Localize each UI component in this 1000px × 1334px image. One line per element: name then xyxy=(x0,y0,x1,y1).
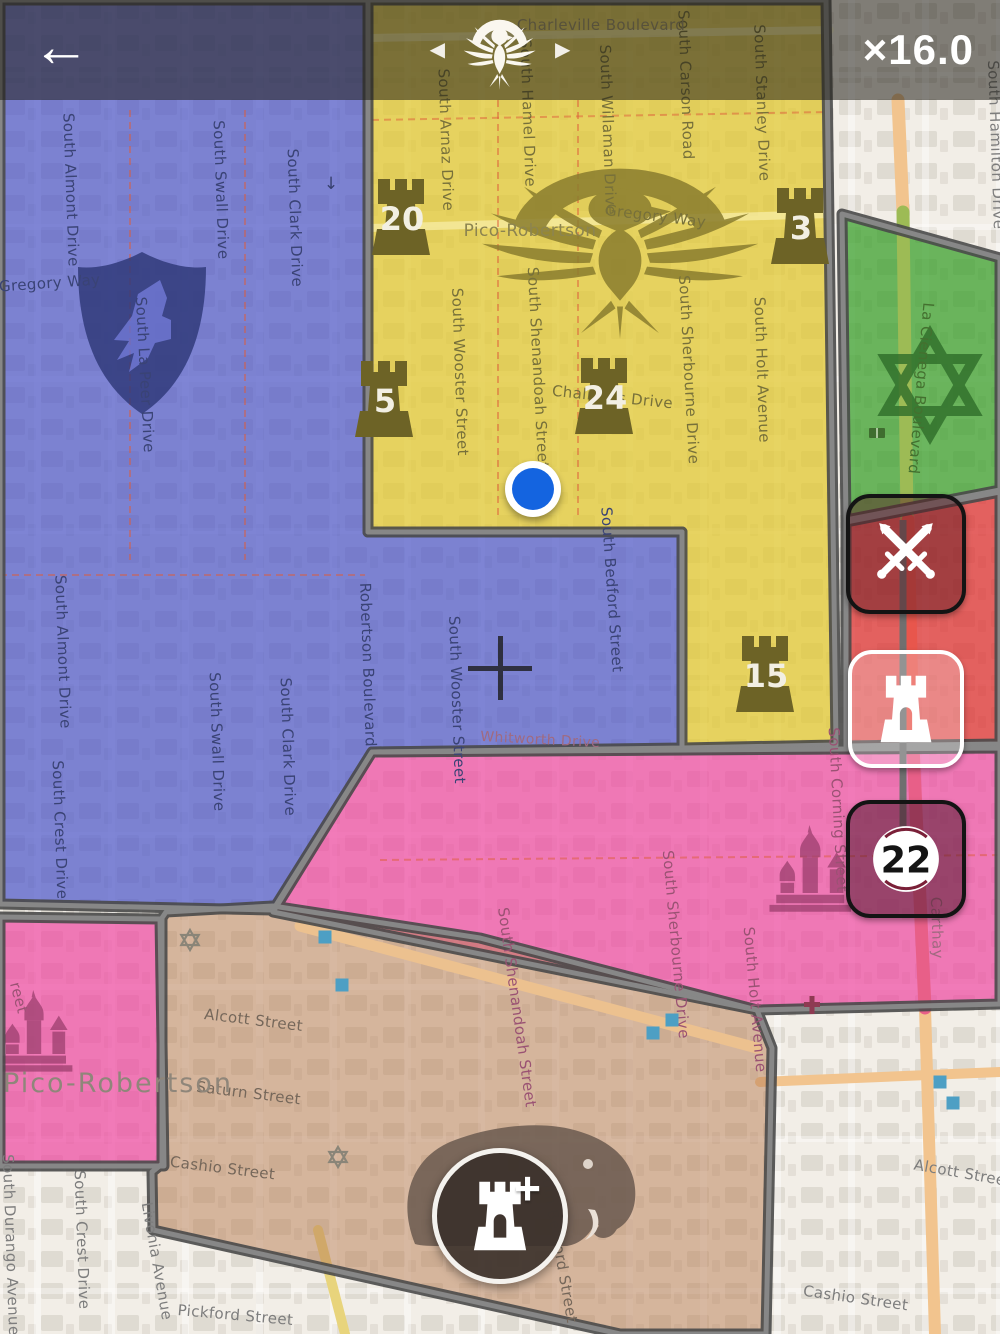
map-center-crosshair xyxy=(468,636,532,700)
crosshair-bar xyxy=(498,636,503,700)
faction-switcher: ◀ ▶ xyxy=(430,0,571,100)
square-map-icon xyxy=(947,1097,960,1110)
tower-icon xyxy=(878,674,934,744)
faction-phoenix-icon xyxy=(461,10,539,90)
attack-button[interactable] xyxy=(846,494,966,614)
game-screen: South Almont DriveSouth Swall DriveSouth… xyxy=(0,0,1000,1334)
book-map-icon xyxy=(869,428,885,438)
zoom-level-label: ×16.0 xyxy=(863,0,974,100)
tower-count: 20 xyxy=(380,200,425,238)
square-map-icon xyxy=(647,1027,660,1040)
medal-22-icon: 22 xyxy=(867,820,945,898)
tower-badge[interactable]: 20 xyxy=(372,179,430,255)
street-label: Pico-Robertson xyxy=(3,1068,233,1099)
square-map-icon xyxy=(336,979,349,992)
tower-button[interactable] xyxy=(848,650,964,768)
medal-count: 22 xyxy=(881,838,932,881)
street-label: Pico-Robertson xyxy=(464,221,597,241)
crossed-swords-icon xyxy=(873,521,939,587)
square-map-icon xyxy=(934,1076,947,1089)
build-tower-button[interactable]: + xyxy=(432,1148,568,1284)
medal-button[interactable]: 22 xyxy=(846,800,966,918)
chevron-left-icon[interactable]: ◀ xyxy=(430,0,445,100)
tower-count: 5 xyxy=(374,382,396,420)
tower-count: 15 xyxy=(744,657,789,695)
player-location-dot xyxy=(505,461,561,517)
player-location-dot-inner xyxy=(512,468,554,510)
svg-text:↓: ↓ xyxy=(324,174,338,194)
back-button[interactable]: ← xyxy=(26,14,96,84)
square-map-icon xyxy=(319,931,332,944)
tower-count: 24 xyxy=(583,379,628,417)
plus-icon: + xyxy=(514,1161,541,1215)
square-map-icon xyxy=(666,1014,679,1027)
top-bar: ← ◀ ▶ ×16.0 xyxy=(0,0,1000,100)
tower-badge[interactable]: 15 xyxy=(736,636,794,712)
tower-badge[interactable]: 24 xyxy=(575,358,633,434)
arrow-map-icon: ↓ xyxy=(324,174,338,194)
tower-count: 3 xyxy=(790,209,812,247)
territory-pink-patch[interactable] xyxy=(0,917,164,1166)
chevron-right-icon[interactable]: ▶ xyxy=(555,0,570,100)
